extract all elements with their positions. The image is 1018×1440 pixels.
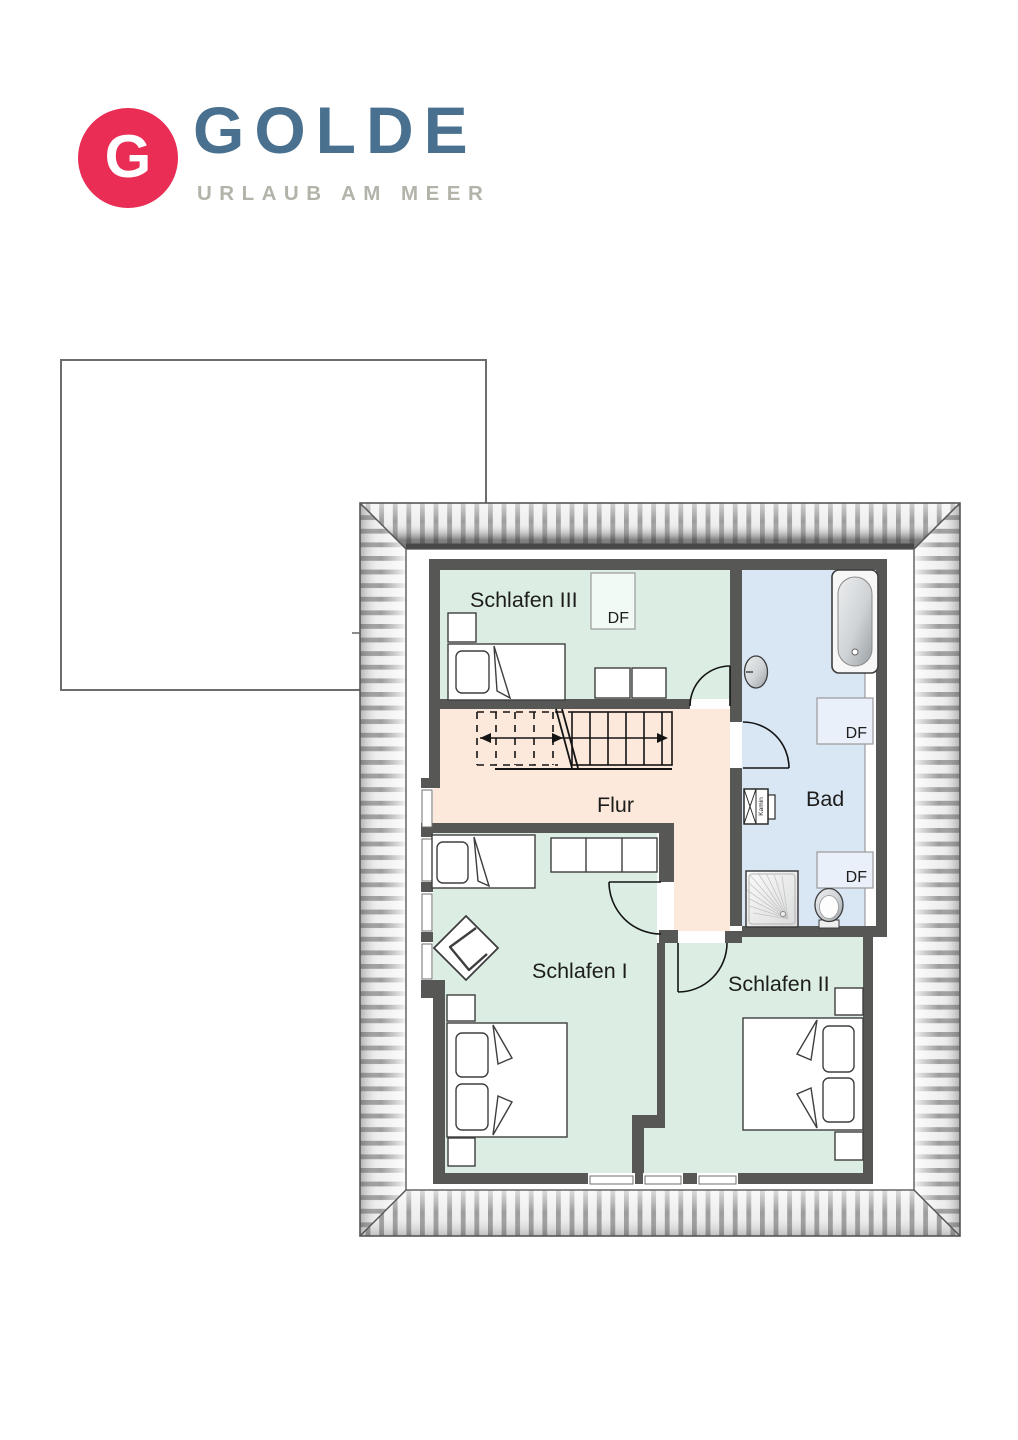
pillow [437, 842, 468, 883]
logo-brand: GOLDE [193, 96, 478, 165]
room-label-schlafen-3: Schlafen III [470, 588, 578, 612]
room-label-schlafen-1: Schlafen I [532, 959, 628, 983]
pillow [823, 1078, 854, 1122]
room-flur-extension [674, 823, 730, 931]
room-label-schlafen-2: Schlafen II [728, 972, 830, 996]
pillow [823, 1026, 854, 1072]
nightstand [835, 988, 863, 1015]
logo-letter: G [105, 127, 152, 187]
room-label-flur: Flur [597, 793, 634, 817]
logo-tagline: URLAUB AM MEER [197, 182, 490, 206]
pillow [456, 651, 489, 693]
floorplan: DF DF DF [352, 488, 968, 1244]
nightstand [835, 1132, 863, 1160]
roof-window-label: DF [846, 725, 868, 742]
logo-badge-icon: G [78, 108, 178, 208]
nightstand [447, 995, 475, 1021]
nightstand [448, 1138, 475, 1166]
page: G GOLDE URLAUB AM MEER [0, 0, 1018, 1440]
chimney-label: Kamin [758, 797, 765, 816]
wardrobe [551, 838, 657, 872]
bathtub-drain [852, 649, 858, 655]
pillow [456, 1033, 488, 1077]
room-label-bad: Bad [806, 787, 844, 811]
roof-window-label: DF [608, 610, 630, 627]
roof-window-label: DF [846, 869, 868, 886]
nightstand [448, 613, 476, 642]
stool [595, 668, 630, 698]
pillow [456, 1084, 488, 1130]
stool [632, 668, 666, 698]
shower [746, 871, 798, 927]
roof-window-schlafen-3: DF [591, 573, 635, 629]
toilet [815, 889, 843, 929]
shower-drain [781, 912, 786, 917]
